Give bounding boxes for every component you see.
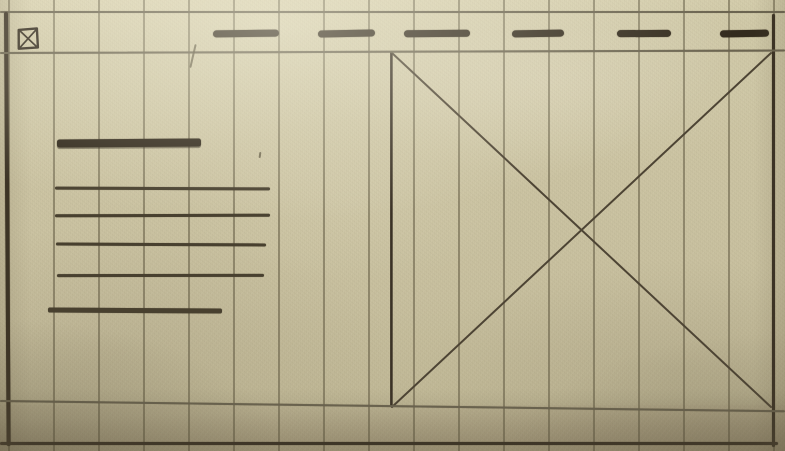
stray-mark-tick (189, 44, 196, 68)
nav-item-placeholder[interactable] (213, 30, 279, 37)
page-border-top (0, 11, 785, 13)
nav-item-placeholder[interactable] (404, 30, 470, 37)
nav-item-placeholder[interactable] (512, 30, 564, 37)
column-rule-line (323, 0, 325, 451)
column-rule-line (278, 0, 280, 451)
diagonal-cross-icon (390, 51, 773, 408)
page-border-bottom (0, 442, 778, 445)
text-line-placeholder (55, 187, 270, 190)
nav-item-placeholder[interactable] (318, 29, 375, 37)
nav-item-placeholder[interactable] (720, 30, 769, 37)
stray-mark-dot (259, 152, 262, 158)
column-rule-line (233, 0, 235, 451)
column-rule-line (98, 0, 100, 451)
image-placeholder[interactable] (390, 51, 773, 408)
column-rule-line (53, 0, 55, 451)
nav-item-placeholder[interactable] (617, 30, 671, 37)
photo-of-wireframe (0, 0, 785, 451)
logo-placeholder[interactable] (17, 27, 40, 51)
heading-placeholder (57, 138, 201, 147)
text-line-placeholder (55, 214, 270, 217)
column-rule-line (143, 0, 145, 451)
text-line-placeholder (57, 274, 264, 277)
text-line-placeholder (48, 308, 222, 313)
text-line-placeholder (56, 243, 266, 247)
page-border-right (772, 14, 775, 448)
column-rule-line (368, 0, 370, 451)
box-with-x-icon (17, 27, 40, 51)
